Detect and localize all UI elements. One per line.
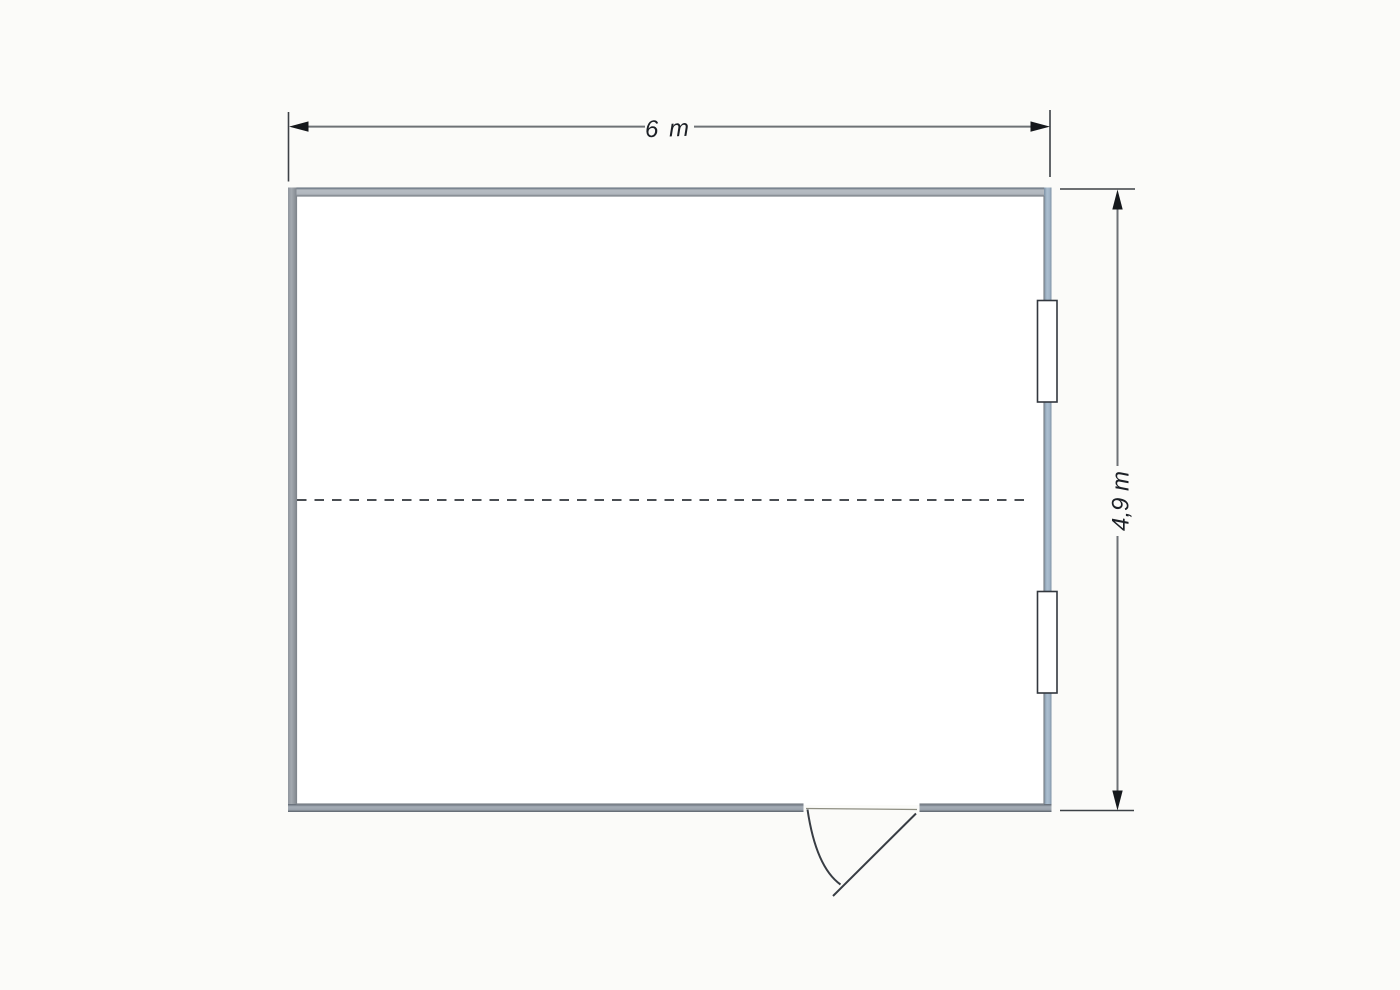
svg-text:4,9 m: 4,9 m (1108, 471, 1135, 531)
svg-text:6 m: 6 m (645, 115, 692, 144)
